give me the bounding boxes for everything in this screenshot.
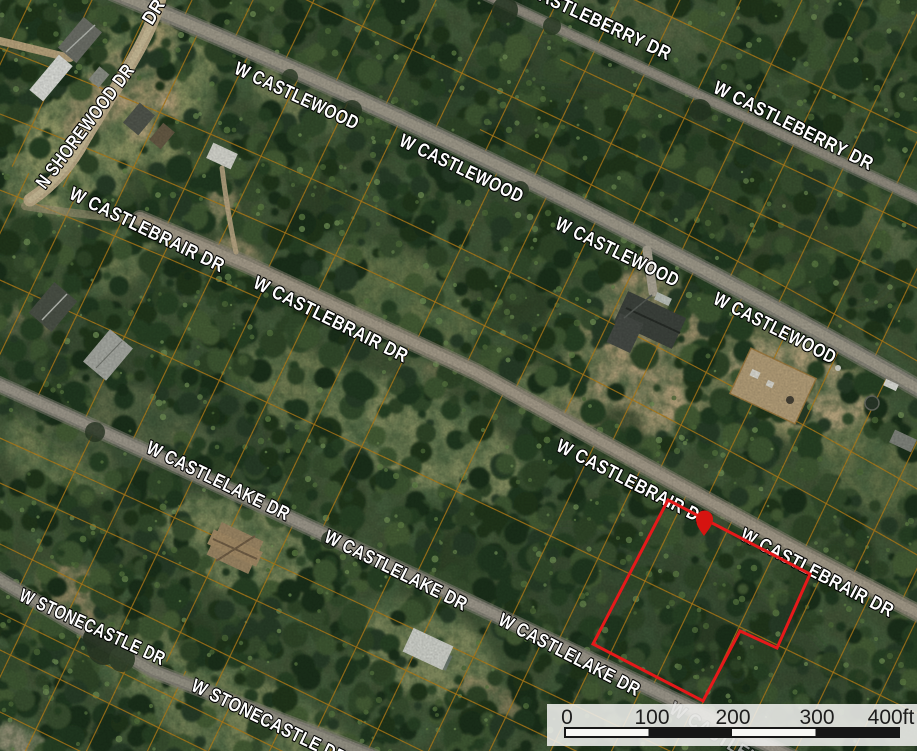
svg-text:0: 0 — [561, 706, 573, 729]
svg-text:200: 200 — [715, 706, 750, 729]
svg-text:100: 100 — [634, 706, 669, 729]
svg-text:300: 300 — [799, 706, 834, 729]
svg-text:400ft: 400ft — [868, 706, 915, 729]
